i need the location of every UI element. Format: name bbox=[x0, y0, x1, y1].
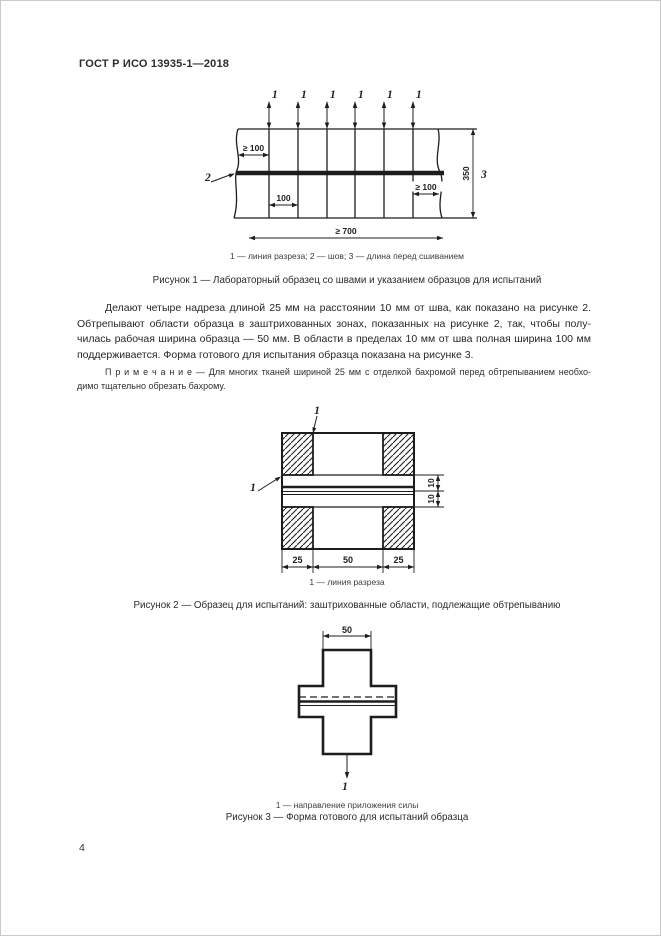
dim-height: 350 3 bbox=[461, 129, 487, 218]
cut-line-callout-left: 1 bbox=[250, 477, 281, 495]
callout-3: 3 bbox=[480, 169, 487, 181]
figure3-drawing: 50 1 bbox=[281, 624, 421, 794]
figure1-drawing: 1 1 1 1 1 1 2 ≥ 100 100 bbox=[181, 86, 501, 246]
svg-text:25: 25 bbox=[393, 555, 403, 565]
hatch-area-top-right bbox=[383, 433, 414, 475]
paragraph-line: чилась рабочая ширина образца — 50 мм. В… bbox=[77, 332, 591, 348]
figure2-caption: Рисунок 2 — Образец для испытаний: заштр… bbox=[91, 600, 603, 611]
seam-band bbox=[299, 697, 396, 706]
callout-1: 1 bbox=[301, 89, 307, 101]
callout-1: 1 bbox=[387, 89, 393, 101]
cut-line-callout-top: 1 bbox=[312, 405, 319, 434]
callout-1: 1 bbox=[342, 781, 348, 793]
force-direction-arrow: 1 bbox=[342, 755, 349, 793]
callout-1: 1 bbox=[272, 89, 278, 101]
dim-widths: 25 50 25 bbox=[282, 549, 414, 573]
seam-callout: 2 bbox=[204, 172, 235, 184]
svg-text:350: 350 bbox=[461, 166, 471, 180]
svg-text:10: 10 bbox=[426, 478, 436, 488]
svg-text:50: 50 bbox=[343, 555, 353, 565]
figure2-drawing: 10 10 1 1 25 50 bbox=[231, 401, 461, 576]
seam-band bbox=[282, 475, 414, 507]
hatch-area-top-left bbox=[282, 433, 313, 475]
paragraph-line: Обтрепывают области образца в заштрихова… bbox=[77, 317, 591, 333]
dim-seam-offsets: 10 10 bbox=[414, 475, 444, 507]
svg-text:≥ 100: ≥ 100 bbox=[243, 143, 264, 153]
svg-text:50: 50 bbox=[342, 625, 352, 635]
callout-1: 1 bbox=[330, 89, 336, 101]
svg-text:≥ 700: ≥ 700 bbox=[335, 226, 356, 236]
body-paragraph: Делают четыре надреза длиной 25 мм на ра… bbox=[77, 301, 591, 363]
figure3-caption: Рисунок 3 — Форма готового для испытаний… bbox=[91, 812, 603, 823]
figure1-legend: 1 — линия разреза; 2 — шов; 3 — длина пе… bbox=[91, 251, 603, 261]
note-line: димо тщательно обрезать бахрому. bbox=[77, 380, 591, 394]
page-header: ГОСТ Р ИСО 13935-1—2018 bbox=[79, 58, 229, 70]
dim-edge-to-cut-right: ≥ 100 bbox=[410, 182, 443, 197]
hatch-area-bottom-right bbox=[383, 507, 414, 549]
note-paragraph: П р и м е ч а н и е — Для многих тканей … bbox=[77, 366, 591, 393]
svg-text:≥ 100: ≥ 100 bbox=[415, 182, 436, 192]
paragraph-line: Делают четыре надреза длиной 25 мм на ра… bbox=[77, 301, 591, 317]
svg-text:10: 10 bbox=[426, 494, 436, 504]
cut-line-callouts: 1 1 1 1 1 1 bbox=[267, 89, 422, 129]
callout-2: 2 bbox=[204, 172, 211, 184]
svg-text:1: 1 bbox=[250, 482, 256, 494]
figure1-caption: Рисунок 1 — Лабораторный образец со швам… bbox=[91, 275, 603, 286]
figure3-legend: 1 — направление приложения силы bbox=[91, 800, 603, 810]
page-number: 4 bbox=[79, 842, 85, 854]
dim-arm-width: 50 bbox=[323, 625, 371, 650]
paragraph-line: поддерживается. Форма готового для испыт… bbox=[77, 348, 591, 364]
svg-text:100: 100 bbox=[276, 193, 290, 203]
callout-1: 1 bbox=[416, 89, 422, 101]
note-line: П р и м е ч а н и е — Для многих тканей … bbox=[77, 366, 591, 380]
dim-total-width: ≥ 700 bbox=[249, 226, 443, 240]
hatch-area-bottom-left bbox=[282, 507, 313, 549]
svg-text:1: 1 bbox=[314, 405, 320, 417]
dim-cut-spacing: 100 bbox=[269, 193, 298, 207]
document-page: ГОСТ Р ИСО 13935-1—2018 1 1 1 1 1 1 bbox=[0, 0, 661, 936]
callout-1: 1 bbox=[358, 89, 364, 101]
figure2-legend: 1 — линия разреза bbox=[91, 577, 603, 587]
dim-edge-to-cut-left: ≥ 100 bbox=[238, 143, 269, 157]
svg-text:25: 25 bbox=[292, 555, 302, 565]
